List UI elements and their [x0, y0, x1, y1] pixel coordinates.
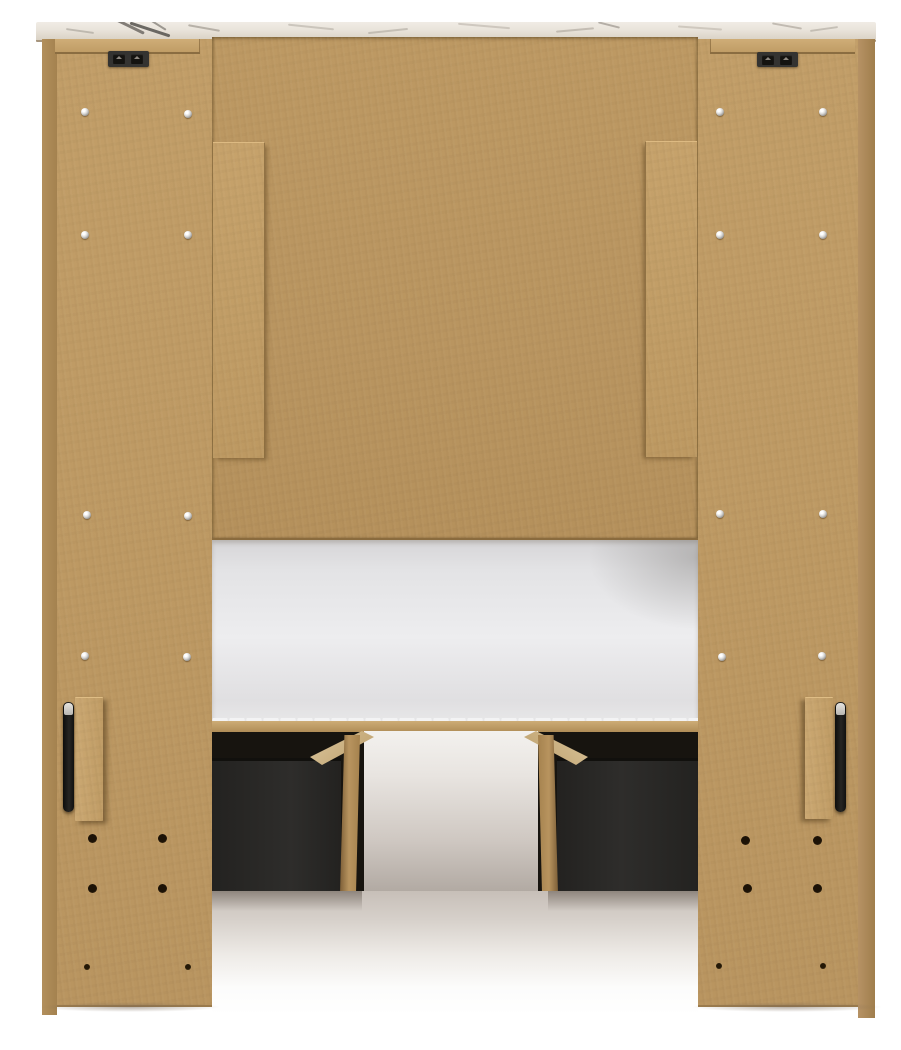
screw-icon — [716, 108, 724, 116]
screw-icon — [718, 653, 726, 661]
mounting-bracket-icon — [757, 52, 798, 67]
slot-caret — [765, 57, 771, 60]
screw-icon — [81, 652, 89, 660]
screw-icon — [184, 512, 192, 520]
screw-icon — [183, 653, 191, 661]
marble-vein — [288, 24, 334, 31]
drill-hole — [158, 884, 167, 893]
drill-hole — [743, 884, 752, 893]
bracket-slot — [762, 55, 774, 65]
slot-caret — [134, 56, 140, 59]
drill-hole — [813, 884, 822, 893]
screw-icon — [716, 510, 724, 518]
left-panel-edge-face — [42, 39, 57, 1015]
drill-hole — [741, 836, 750, 845]
screw-icon — [818, 652, 826, 660]
left-side-panel — [57, 39, 212, 1007]
marble-vein — [188, 24, 220, 32]
mattress-shadow — [588, 540, 698, 630]
drill-hole-small — [84, 964, 90, 970]
floor-shadow-left — [212, 891, 362, 911]
left-vertical-batten — [213, 142, 265, 458]
bracket-slot — [780, 55, 792, 65]
drill-hole — [88, 834, 97, 843]
screw-icon — [819, 510, 827, 518]
bracket-slot — [131, 54, 143, 64]
screw-icon — [184, 231, 192, 239]
marble-vein — [772, 22, 802, 29]
drill-hole — [813, 836, 822, 845]
product-photo-storage-bed-back-view — [0, 0, 901, 1050]
bed-opening — [212, 540, 698, 1015]
screw-icon — [83, 511, 91, 519]
left-handle-tip — [64, 703, 73, 715]
marble-vein — [810, 26, 838, 32]
storage-drawer-left — [212, 758, 341, 894]
right-vertical-batten — [645, 141, 697, 457]
right-handle-icon — [835, 702, 846, 812]
screw-icon — [81, 108, 89, 116]
screw-icon — [184, 110, 192, 118]
right-handle-tip — [836, 703, 845, 715]
screw-icon — [716, 231, 724, 239]
ground-shadow-right — [692, 1002, 882, 1012]
drill-hole-small — [185, 964, 191, 970]
marble-vein — [66, 28, 94, 34]
right-panel-edge-face — [858, 39, 875, 1018]
slot-caret — [783, 57, 789, 60]
right-side-panel — [698, 39, 858, 1007]
marble-vein — [458, 23, 510, 30]
slot-caret — [116, 56, 122, 59]
ground-shadow-left — [40, 1002, 220, 1012]
mounting-bracket-icon — [108, 51, 149, 67]
drill-hole — [88, 884, 97, 893]
headboard-back-panel — [212, 37, 698, 541]
marble-vein — [368, 28, 408, 34]
marble-vein — [598, 22, 620, 29]
drill-hole-small — [820, 963, 826, 969]
drill-hole-small — [716, 963, 722, 969]
left-handle-block — [75, 697, 103, 821]
screw-icon — [81, 231, 89, 239]
underbed-center-light — [364, 731, 538, 891]
bracket-slot — [113, 54, 125, 64]
storage-drawer-right — [557, 758, 698, 894]
right-handle-block — [805, 697, 833, 819]
marble-vein — [678, 25, 722, 30]
screw-icon — [819, 108, 827, 116]
marble-vein — [556, 27, 594, 32]
screw-icon — [819, 231, 827, 239]
left-handle-icon — [63, 702, 74, 812]
drill-hole — [158, 834, 167, 843]
floor-shadow-right — [548, 891, 698, 911]
